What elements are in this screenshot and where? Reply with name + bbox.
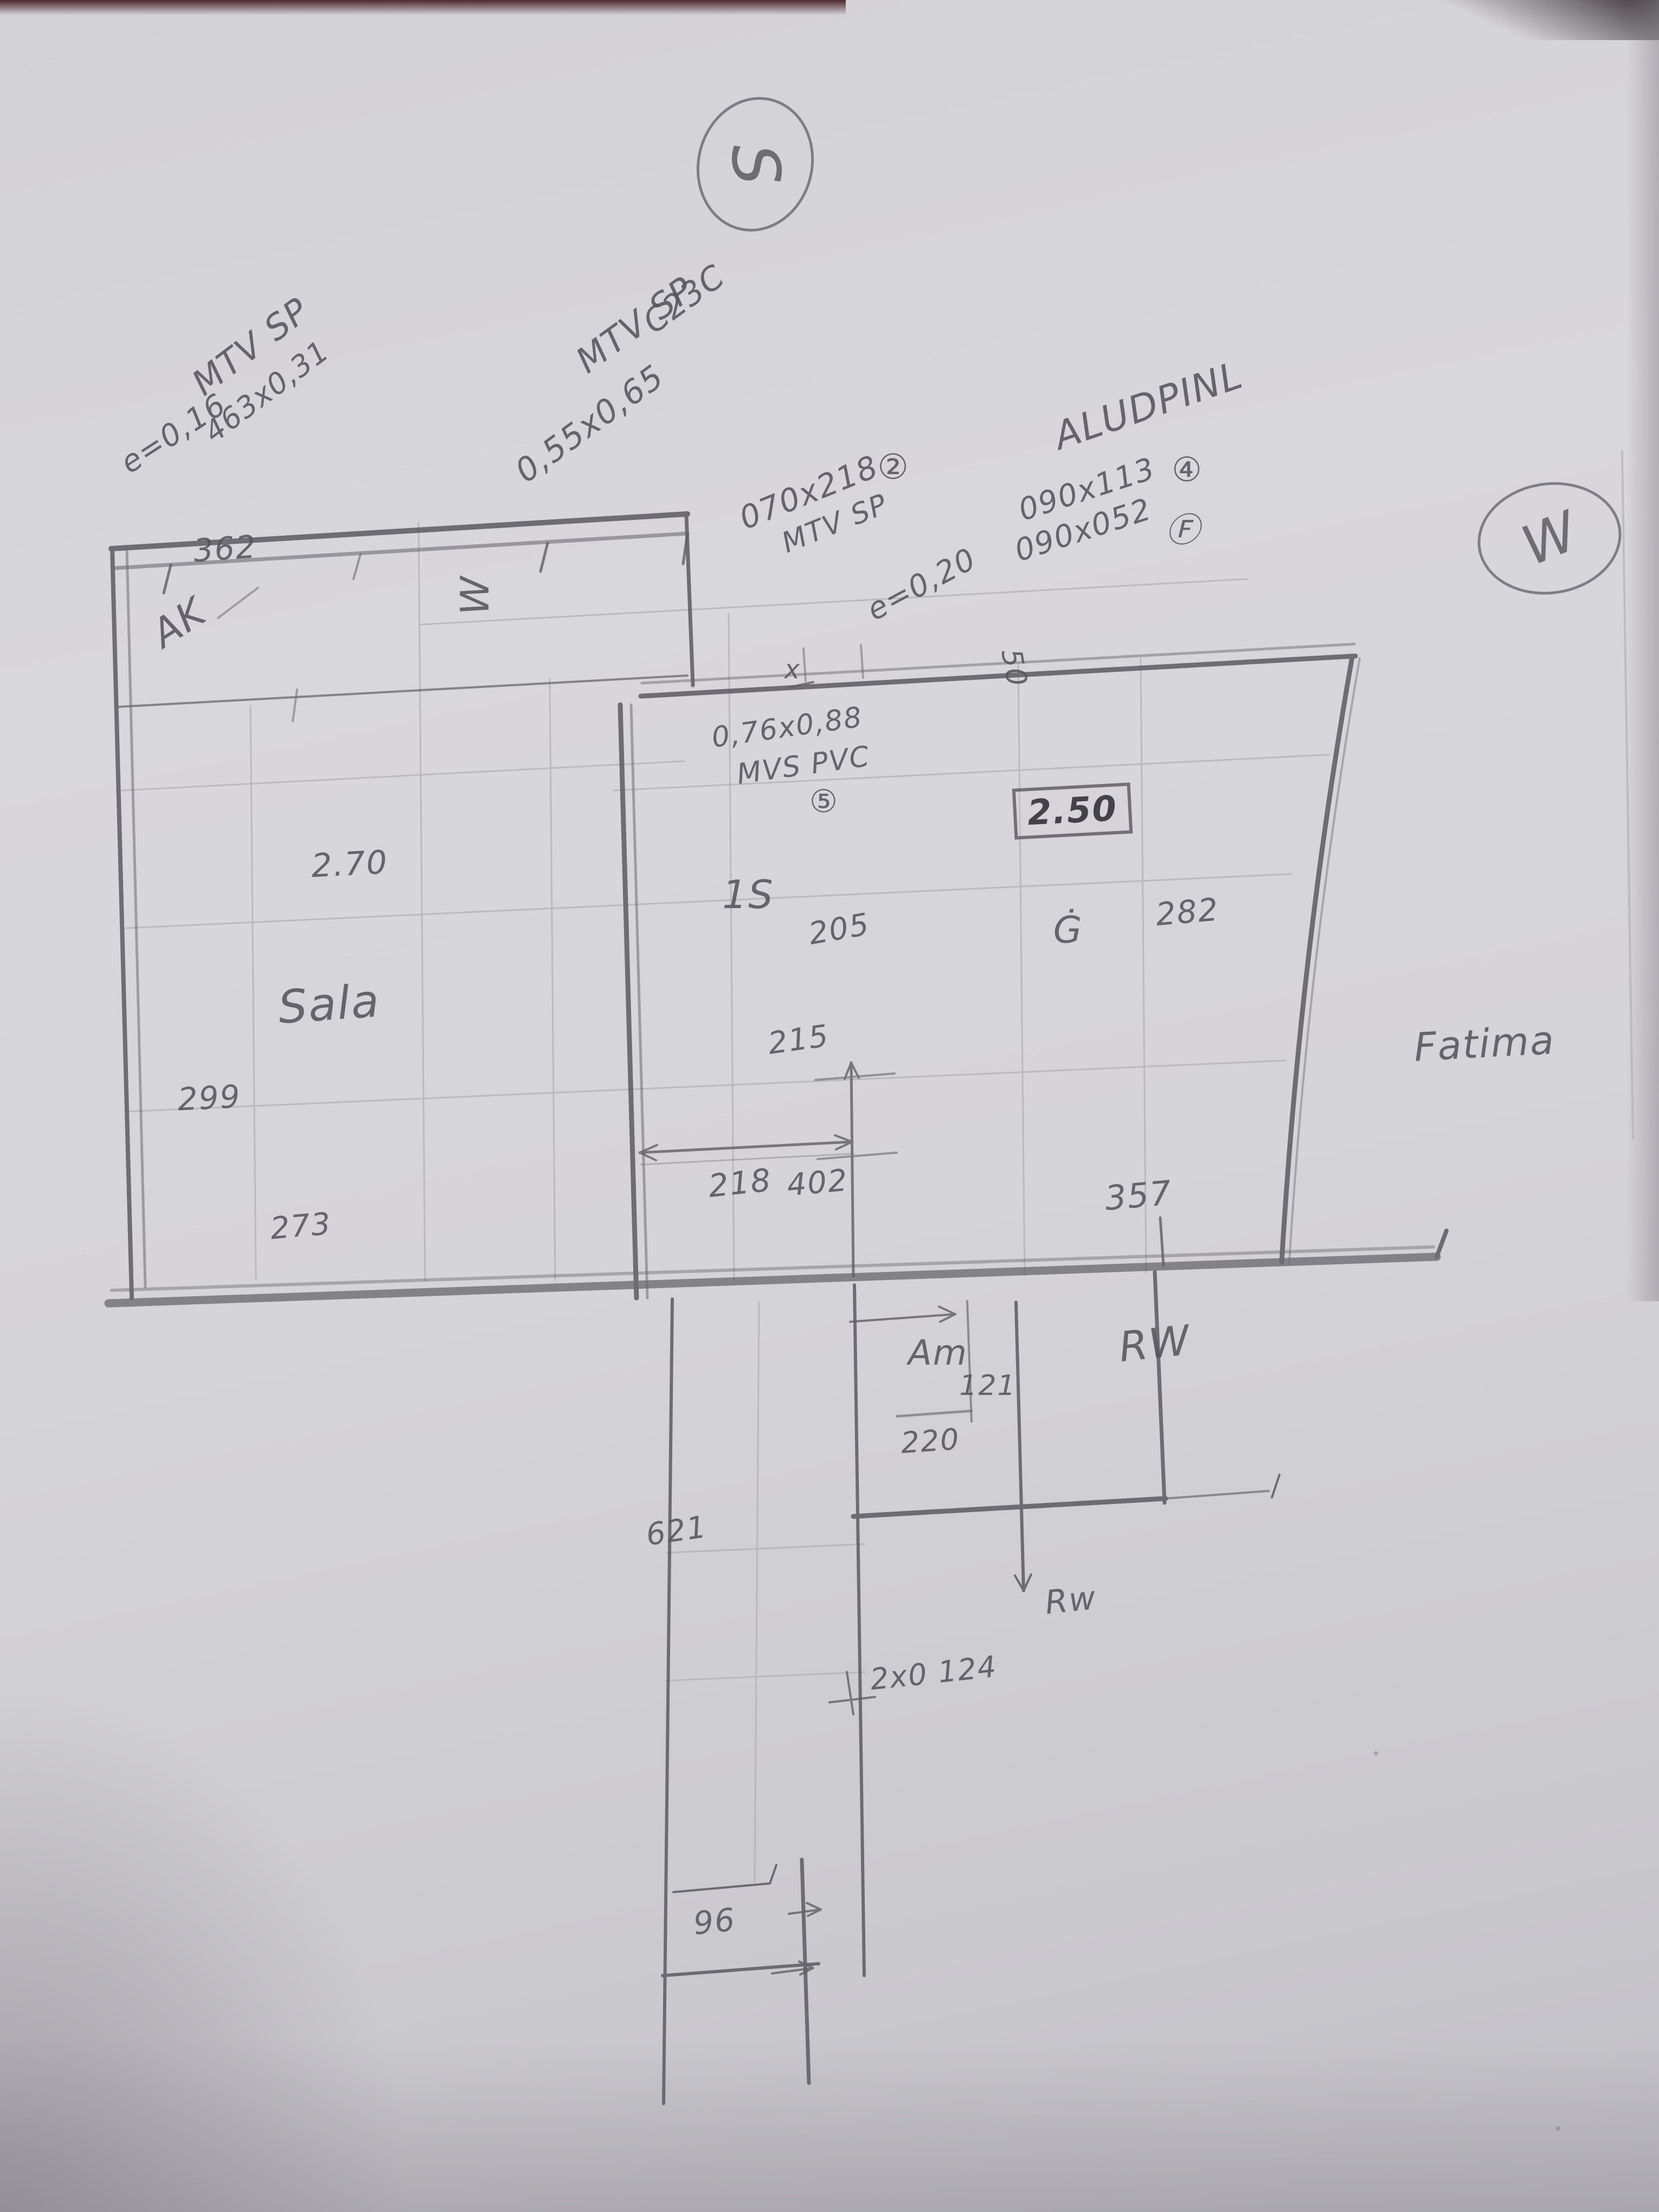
compass-west-letter: W (1513, 499, 1586, 578)
note-rw-small: Rw (1043, 1579, 1098, 1622)
note-circled-5: ⑤ (809, 783, 839, 820)
room-label-1s: 1S (722, 872, 774, 917)
note-circled-f: Ⓕ (1166, 503, 1200, 551)
note-g-dot: Ġ (1053, 909, 1083, 952)
note-fatima: Fatima (1413, 1017, 1556, 1070)
dim-line-402 (851, 1063, 853, 1276)
dim-270: 2.70 (310, 843, 389, 885)
dim-282: 282 (1154, 891, 1220, 933)
dim-357: 357 (1103, 1173, 1174, 1218)
tick-357 (1160, 1218, 1163, 1265)
pencil-speck (1556, 2126, 1560, 2131)
am-room-right-wall (1155, 1272, 1165, 1503)
room-label-sala: Sala (276, 974, 382, 1034)
dim-402: 402 (786, 1163, 850, 1204)
dim-273: 273 (269, 1206, 333, 1247)
room-label-am: Am (908, 1333, 968, 1373)
note-circled-2: ② (877, 447, 909, 487)
pencil-speck (1374, 1751, 1378, 1756)
dim-line-220 (897, 1411, 972, 1416)
dim-299: 299 (177, 1078, 242, 1118)
bottom-wall (108, 1257, 1437, 1303)
dim-362: 362 (192, 528, 258, 569)
ceiling-height-250: 2.50 (1012, 782, 1133, 839)
note-w-strip: W (452, 575, 498, 615)
dim-96: 96 (692, 1901, 737, 1942)
am-room-bottom-wall (853, 1499, 1166, 1516)
dim-line-218 (640, 1142, 852, 1153)
sketch-photo: S W MTV SP e=0,16 463x0,31 MTV SP C23C 0… (0, 0, 1659, 2212)
dim-220: 220 (899, 1422, 961, 1460)
corridor-left-wall (664, 1299, 672, 2104)
tick-label-x: x (785, 654, 801, 685)
door-swing-mark (218, 588, 258, 618)
dim-121: 121 (959, 1369, 1016, 1402)
note-rw-big: RW (1117, 1316, 1193, 1371)
compass-south-letter: S (716, 141, 794, 188)
corridor-right-wall (854, 1285, 864, 1976)
note-circled-4: ④ (1172, 450, 1203, 490)
dim-218: 218 (706, 1161, 773, 1205)
balcony-divider (116, 676, 687, 707)
paper-fold-line (1622, 451, 1633, 1139)
tick-label-50: 50 (994, 646, 1033, 690)
